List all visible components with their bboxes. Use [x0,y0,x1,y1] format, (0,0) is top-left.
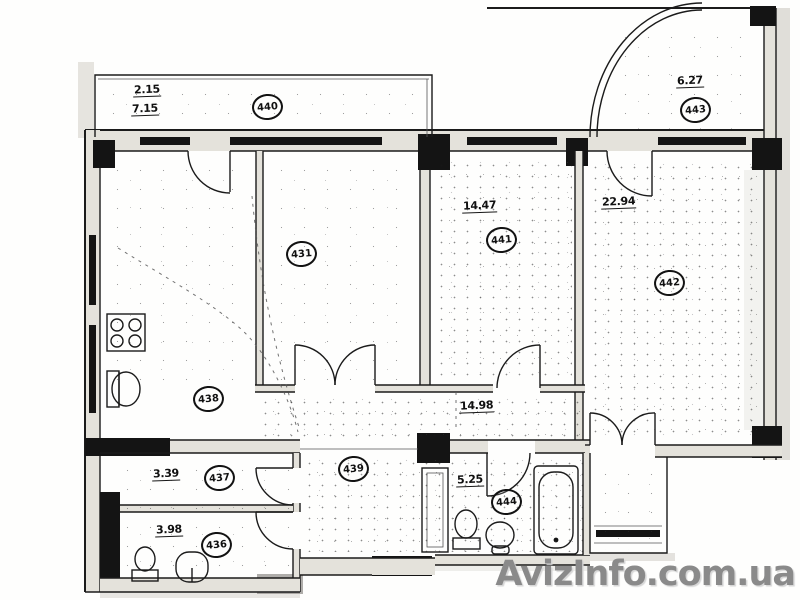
dimension-balcony-443: 6.27 [676,75,704,89]
door-room441 [497,345,540,388]
washbasin-icon-444 [486,522,514,554]
dimension-room-436: 3.98 [155,524,183,538]
kitchen-sink-icon [107,371,140,407]
room436-door-arc [256,512,293,549]
scan-page: 2.15 7.15 6.27 14.47 22.94 14.98 3.39 3.… [0,0,800,600]
floor-plan: 2.15 7.15 6.27 14.47 22.94 14.98 3.39 3.… [0,0,800,600]
dimension-room-441: 14.47 [462,199,498,213]
dimension-room-437: 3.39 [152,468,180,482]
scan-artifacts [118,196,456,432]
stove-icon [107,314,145,351]
dimension-balcony-440-a: 2.15 [133,84,161,98]
dimension-balcony-440-b: 7.15 [131,103,159,117]
dimension-room-442: 22.94 [601,195,637,209]
toilet-icon-444 [453,510,480,549]
columns [85,6,782,592]
interior-walls [85,151,782,592]
floor-plan-drawing [0,0,800,600]
duct-shaft [422,468,448,552]
room437-door-arc [256,468,293,505]
windows [89,137,746,537]
corner-balcony-door-arc [607,151,652,196]
double-door-room431 [295,345,375,385]
dimension-hall-439: 14.98 [459,399,495,413]
toilet-icon-436 [132,547,158,581]
bathtub-icon [534,466,578,554]
double-door-room442 [590,413,655,445]
balcony-bottom-right [590,457,667,553]
dimension-bathroom-444: 5.25 [456,474,484,488]
watermark: AvizInfo.com.ua [495,554,795,594]
balcony-door-arc [188,151,230,193]
